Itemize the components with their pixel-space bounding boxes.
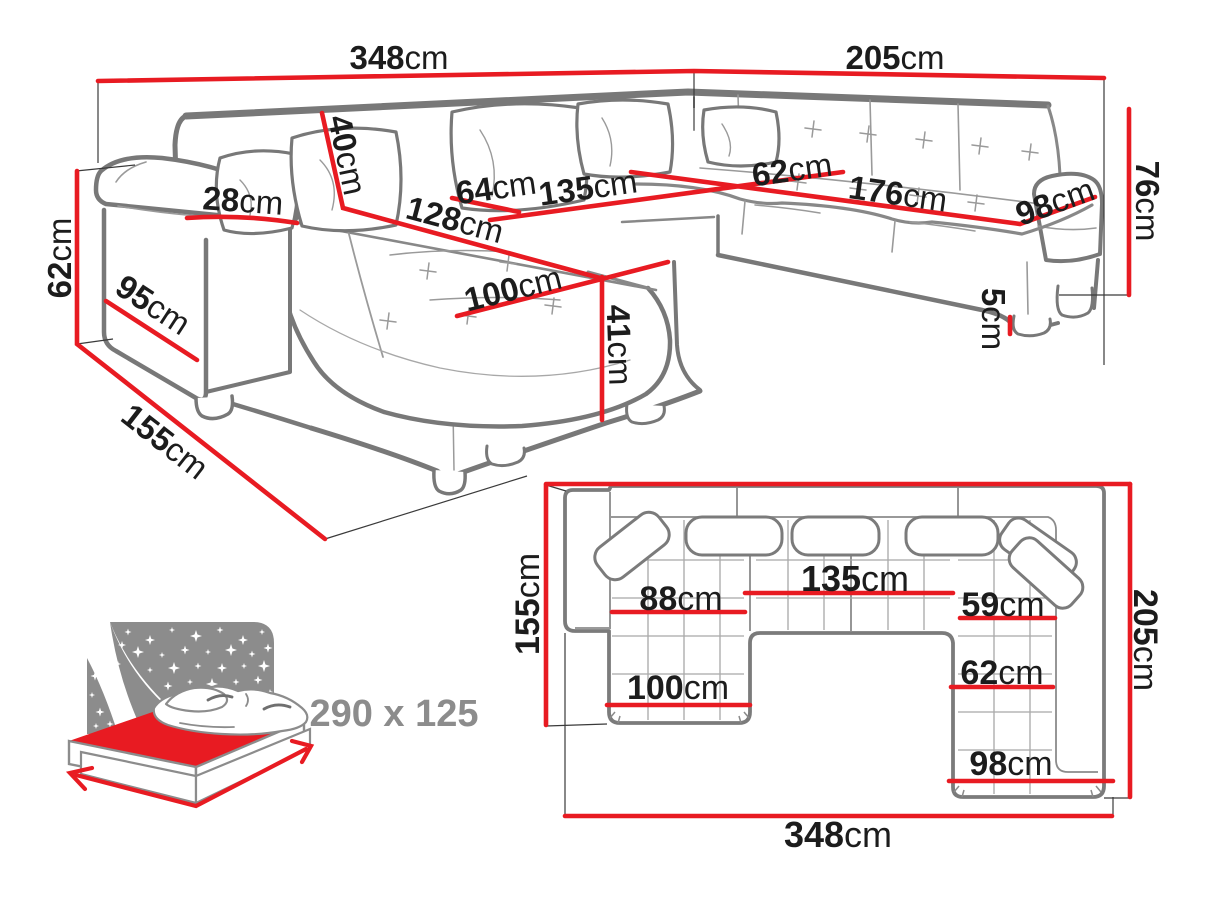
svg-text:88cm: 88cm [639,580,722,618]
svg-text:155cm: 155cm [509,553,547,655]
svg-text:100cm: 100cm [627,669,729,707]
svg-text:62cm: 62cm [960,654,1043,692]
svg-text:5cm: 5cm [975,288,1012,350]
svg-text:62cm: 62cm [41,218,78,299]
svg-text:28cm: 28cm [201,179,284,222]
svg-text:59cm: 59cm [961,586,1044,624]
svg-text:348cm: 348cm [784,814,892,855]
svg-text:41cm: 41cm [600,304,640,386]
svg-text:98cm: 98cm [969,745,1052,783]
svg-text:135cm: 135cm [801,558,909,599]
svg-text:290 x 125: 290 x 125 [309,693,478,735]
svg-text:205cm: 205cm [845,39,944,76]
svg-text:205cm: 205cm [1126,589,1164,691]
svg-text:348cm: 348cm [349,39,448,76]
svg-text:76cm: 76cm [1129,161,1166,242]
